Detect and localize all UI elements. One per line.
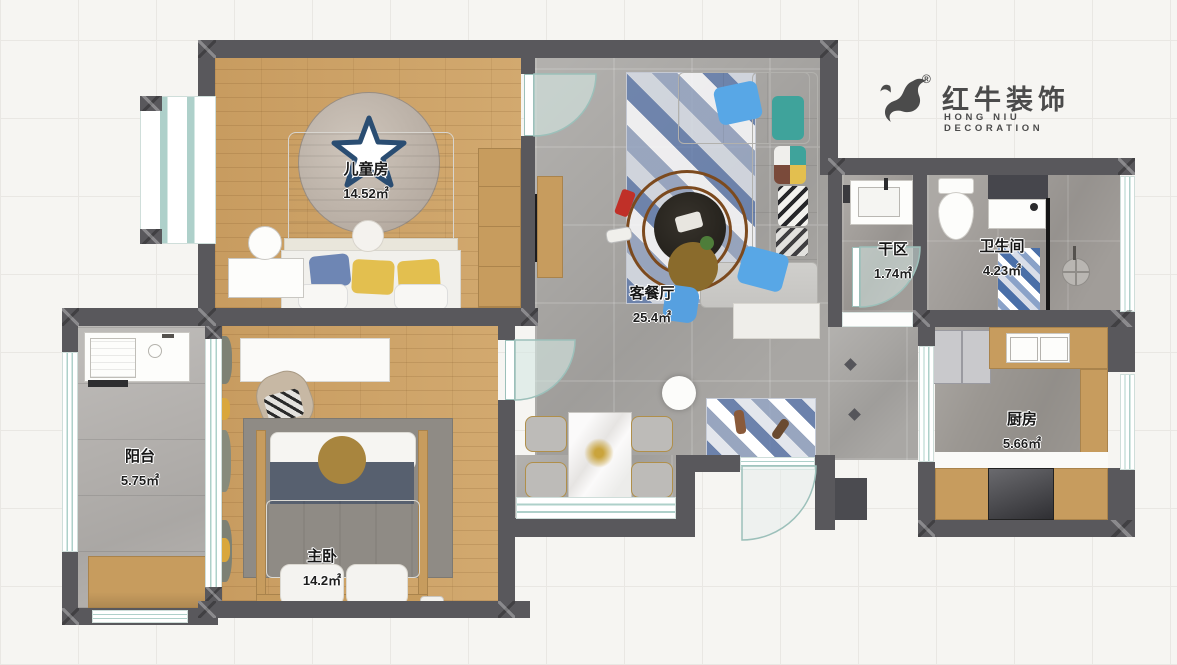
children-door-leaf	[524, 74, 534, 136]
room-name: 主卧	[303, 545, 341, 566]
room-name: 卫生间	[979, 235, 1024, 256]
room-name: 客餐厅	[629, 282, 674, 303]
room-area: 5.75㎡	[121, 470, 159, 489]
room-name: 厨房	[1003, 408, 1041, 429]
room-area: 14.52㎡	[343, 183, 389, 202]
room-label-balcony: 阳台 5.75㎡	[121, 445, 159, 489]
room-label-living: 客餐厅 25.4㎡	[629, 282, 674, 326]
room-area: 14.2㎡	[303, 570, 341, 589]
children-room-door-arc	[534, 74, 596, 136]
master-door-leaf	[505, 340, 515, 400]
room-area: 5.66㎡	[1003, 433, 1041, 452]
entry-door-arc	[742, 466, 816, 540]
brand-logo: ® 红牛装饰 HONG NIU DECORATION	[878, 70, 1108, 134]
registered-mark: ®	[922, 72, 931, 86]
room-name: 干区	[874, 238, 912, 259]
room-name: 儿童房	[343, 158, 389, 179]
bull-icon-path	[880, 79, 926, 122]
room-label-dry-area: 干区 1.74㎡	[874, 238, 912, 282]
room-area: 4.23㎡	[979, 260, 1024, 279]
brand-name-en: HONG NIU DECORATION	[944, 112, 1108, 134]
master-bedroom-door-arc	[515, 340, 575, 400]
room-label-children: 儿童房 14.52㎡	[343, 158, 389, 202]
room-name: 阳台	[121, 445, 159, 466]
room-label-bathroom: 卫生间 4.23㎡	[979, 235, 1024, 279]
room-label-master: 主卧 14.2㎡	[303, 545, 341, 589]
floor-plan-canvas: 儿童房 14.52㎡ 客餐厅 25.4㎡ 干区 1.74㎡ 卫生间 4.23㎡ …	[0, 0, 1177, 665]
dry-area-door-leaf	[852, 247, 860, 307]
room-area: 1.74㎡	[874, 263, 912, 282]
room-area: 25.4㎡	[629, 307, 674, 326]
room-label-kitchen: 厨房 5.66㎡	[1003, 408, 1041, 452]
